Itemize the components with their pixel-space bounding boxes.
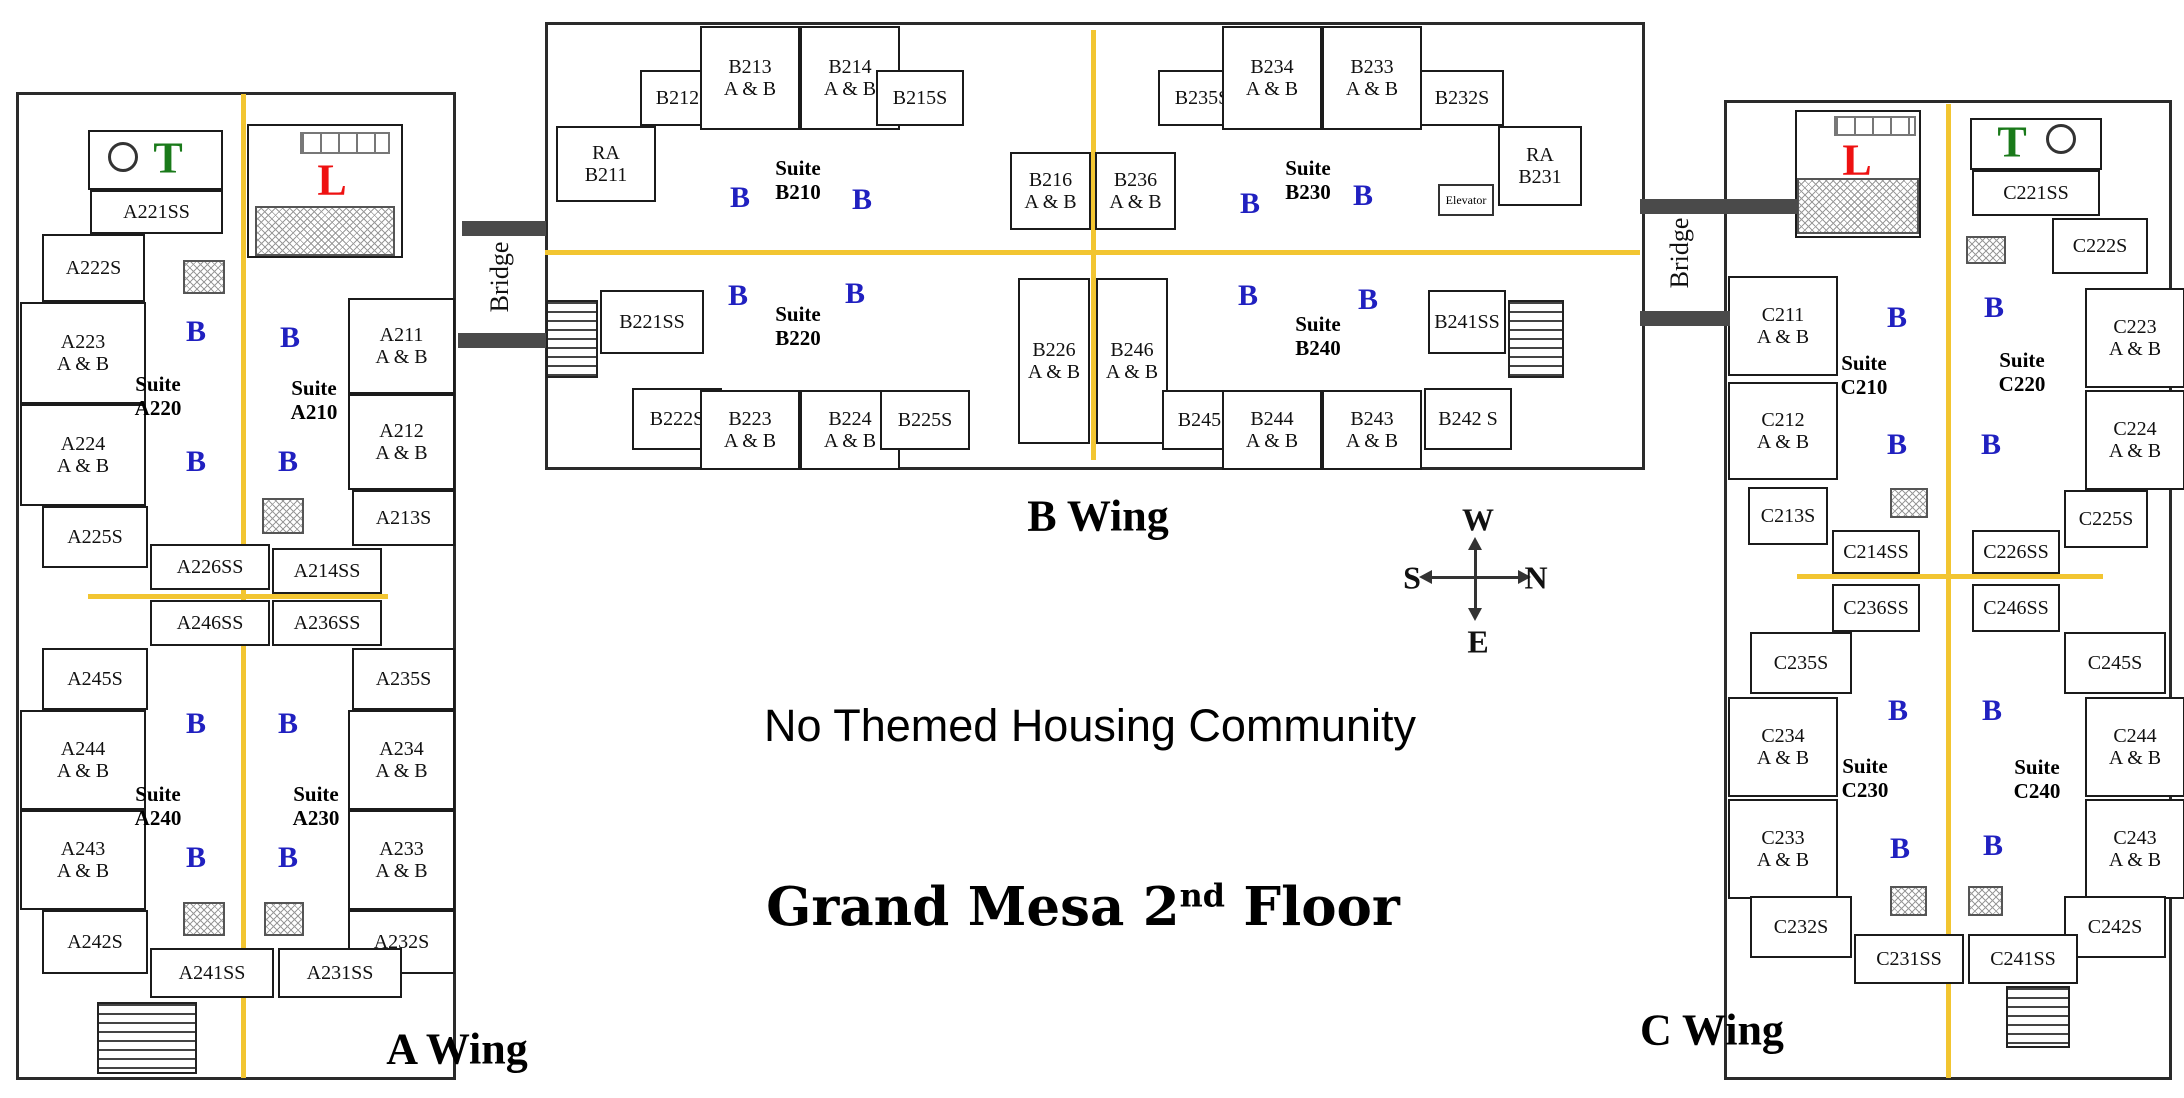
bath-letter-marker: B	[186, 707, 206, 741]
room-B232S: B232S	[1420, 70, 1504, 126]
room-C234: C234 A & B	[1728, 697, 1838, 797]
floor-title-sup: nd	[1180, 877, 1225, 914]
bath-letter-marker: B	[278, 445, 298, 479]
bath-letter-marker: B	[852, 183, 872, 217]
room-B216: B216 A & B	[1010, 152, 1091, 230]
room-C243: C243 A & B	[2085, 799, 2184, 899]
room-C246SS: C246SS	[1972, 584, 2060, 632]
suite-label-B230: Suite B230	[1285, 156, 1331, 204]
room-A211: A211 A & B	[348, 298, 455, 394]
room-B236: B236 A & B	[1095, 152, 1176, 230]
suite-label-B240: Suite B240	[1295, 312, 1341, 360]
room-C235S: C235S	[1750, 632, 1852, 694]
hatched-area	[1797, 178, 1919, 234]
suite-label-C230: Suite C230	[1842, 754, 1889, 802]
room-A242S: A242S	[42, 910, 148, 974]
suite-label-A230: Suite A230	[293, 782, 340, 830]
room-C232S: C232S	[1750, 896, 1852, 958]
bath-letter-marker: B	[1982, 694, 2002, 728]
bath-letter-marker: B	[730, 181, 750, 215]
elevator: Elevator	[1438, 184, 1494, 216]
suite-label-B220: Suite B220	[775, 302, 821, 350]
room-B234: B234 A & B	[1222, 26, 1322, 130]
suite-label-A220: Suite A220	[135, 372, 182, 420]
bath-letter-marker: B	[1238, 279, 1258, 313]
bath-letter-marker: B	[278, 841, 298, 875]
room-C212: C212 A & B	[1728, 382, 1838, 480]
room-B225S: B225S	[880, 390, 970, 450]
room-C242S: C242S	[2064, 896, 2166, 958]
bath-letter-marker: B	[1887, 301, 1907, 335]
wing-label-C: C Wing	[1640, 1005, 1784, 1056]
bath-letter-marker: B	[1981, 428, 2001, 462]
floor-title-suffix: Floor	[1225, 876, 1400, 938]
room-B233: B233 A & B	[1322, 26, 1422, 130]
compass-vertical-line	[1474, 542, 1477, 612]
room-A246SS: A246SS	[150, 600, 270, 646]
room-B223: B223 A & B	[700, 390, 800, 470]
room-C233: C233 A & B	[1728, 799, 1838, 899]
hatched-area	[1890, 886, 1927, 916]
suite-label-A240: Suite A240	[135, 782, 182, 830]
room-A214SS: A214SS	[272, 548, 382, 594]
compass-letter-west: W	[1462, 502, 1494, 539]
room-A244: A244 A & B	[20, 710, 146, 810]
room-A222S: A222S	[42, 234, 145, 302]
staircase	[2006, 986, 2070, 1048]
room-A226SS: A226SS	[150, 544, 270, 590]
bath-letter-marker: B	[186, 315, 206, 349]
fixture-circle-icon	[108, 142, 138, 172]
bath-letter-marker: B	[186, 445, 206, 479]
hatched-area	[1966, 236, 2006, 264]
room-C241SS: C241SS	[1968, 934, 2078, 984]
room-B241SS: B241SS	[1428, 290, 1506, 354]
suite-label-C210: Suite C210	[1841, 351, 1888, 399]
bridge-label: Bridge	[1665, 218, 1695, 289]
bath-letter-marker: B	[1984, 291, 2004, 325]
room-A231SS: A231SS	[278, 948, 402, 998]
room-B226: B226 A & B	[1018, 278, 1090, 444]
room-A221SS: A221SS	[90, 190, 223, 234]
bath-letter-marker: B	[1353, 179, 1373, 213]
bath-letter-marker: B	[728, 279, 748, 313]
bridge-wall	[458, 333, 546, 348]
hatched-area	[183, 902, 225, 936]
room-A243: A243 A & B	[20, 810, 146, 910]
suite-label-A210: Suite A210	[291, 376, 338, 424]
compass-letter-east: E	[1467, 624, 1488, 661]
bath-letter-marker: B	[845, 277, 865, 311]
bridge-wall	[462, 221, 546, 236]
room-C231SS: C231SS	[1854, 934, 1964, 984]
fixture-circle-icon	[2046, 124, 2076, 154]
bath-letter-marker: B	[186, 841, 206, 875]
corridor-line	[1946, 104, 1951, 1078]
letter-T-marker: T	[153, 133, 182, 184]
room-C223: C223 A & B	[2085, 288, 2184, 388]
wing-label-B: B Wing	[1027, 491, 1168, 542]
suite-label-C240: Suite C240	[2014, 755, 2061, 803]
bridge-label: Bridge	[485, 242, 515, 313]
compass-letter-south: S	[1403, 560, 1421, 597]
hatched-area	[1968, 886, 2003, 916]
room-C214SS: C214SS	[1832, 530, 1920, 574]
room-C211: C211 A & B	[1728, 276, 1838, 376]
room-A212: A212 A & B	[348, 394, 455, 490]
room-RA: RA B231	[1498, 126, 1582, 206]
bath-letter-marker: B	[1983, 829, 2003, 863]
bath-letter-marker: B	[1888, 694, 1908, 728]
bridge-wall	[1640, 199, 1798, 214]
room-C245S: C245S	[2064, 632, 2166, 694]
hatched-area	[255, 206, 395, 256]
room-B213: B213 A & B	[700, 26, 800, 130]
room-A235S: A235S	[352, 648, 455, 710]
room-A224: A224 A & B	[20, 404, 146, 506]
corridor-line	[1797, 574, 2103, 579]
floor-title: Grand Mesa 2nd Floor	[683, 876, 1483, 938]
room-B243: B243 A & B	[1322, 390, 1422, 470]
floor-title-prefix: Grand Mesa 2	[766, 876, 1179, 938]
suite-label-B210: Suite B210	[775, 156, 821, 204]
bath-letter-marker: B	[278, 707, 298, 741]
room-A213S: A213S	[352, 490, 455, 546]
room-B246: B246 A & B	[1096, 278, 1168, 444]
room-C221SS: C221SS	[1972, 170, 2100, 216]
room-C244: C244 A & B	[2085, 697, 2184, 797]
bath-letter-marker: B	[280, 321, 300, 355]
room-C224: C224 A & B	[2085, 390, 2184, 490]
bath-letter-marker: B	[1890, 832, 1910, 866]
room-C-utility	[1970, 118, 2102, 170]
room-C226SS: C226SS	[1972, 530, 2060, 574]
room-A236SS: A236SS	[272, 600, 382, 646]
no-themed-housing-text: No Themed Housing Community	[640, 700, 1540, 752]
letter-T-marker: T	[1997, 117, 2026, 168]
room-C236SS: C236SS	[1832, 584, 1920, 632]
wing-label-A: A Wing	[386, 1024, 527, 1075]
staircase	[97, 1002, 197, 1074]
window-grid	[1834, 116, 1916, 136]
bath-letter-marker: B	[1240, 187, 1260, 221]
hatched-area	[1890, 488, 1928, 518]
bath-letter-marker: B	[1887, 428, 1907, 462]
letter-L-marker: L	[1842, 135, 1871, 186]
room-RA: RA B211	[556, 126, 656, 202]
room-B221SS: B221SS	[600, 290, 704, 354]
hatched-area	[262, 498, 304, 534]
room-A234: A234 A & B	[348, 710, 455, 810]
room-B215S: B215S	[876, 70, 964, 126]
staircase	[1508, 300, 1564, 378]
room-A223: A223 A & B	[20, 302, 146, 404]
room-C225S: C225S	[2064, 490, 2148, 548]
letter-L-marker: L	[317, 155, 346, 206]
room-C222S: C222S	[2052, 218, 2148, 274]
corridor-line	[88, 594, 388, 599]
room-A241SS: A241SS	[150, 948, 274, 998]
room-B242S: B242 S	[1424, 388, 1512, 450]
bath-letter-marker: B	[1358, 283, 1378, 317]
hatched-area	[183, 260, 225, 294]
room-A225S: A225S	[42, 506, 148, 568]
compass-letter-north: N	[1524, 560, 1547, 597]
staircase	[546, 300, 598, 378]
room-A245S: A245S	[42, 648, 148, 710]
bridge-wall	[1640, 311, 1730, 326]
room-B244: B244 A & B	[1222, 390, 1322, 470]
room-A233: A233 A & B	[348, 810, 455, 910]
hatched-area	[264, 902, 304, 936]
floor-plan: No Themed Housing Community Grand Mesa 2…	[0, 0, 2184, 1098]
window-grid	[300, 132, 390, 154]
room-C213S: C213S	[1748, 487, 1828, 545]
suite-label-C220: Suite C220	[1999, 348, 2046, 396]
